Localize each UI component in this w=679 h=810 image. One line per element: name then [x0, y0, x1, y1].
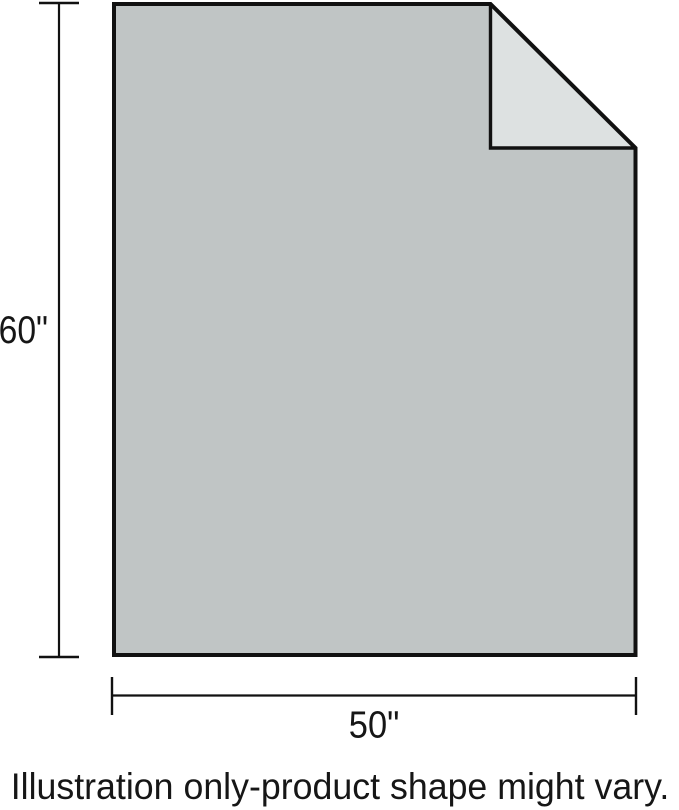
svg-text:60": 60" [0, 308, 48, 352]
svg-text:Illustration only-product shap: Illustration only-product shape might va… [11, 765, 670, 807]
svg-text:50": 50" [349, 703, 400, 746]
